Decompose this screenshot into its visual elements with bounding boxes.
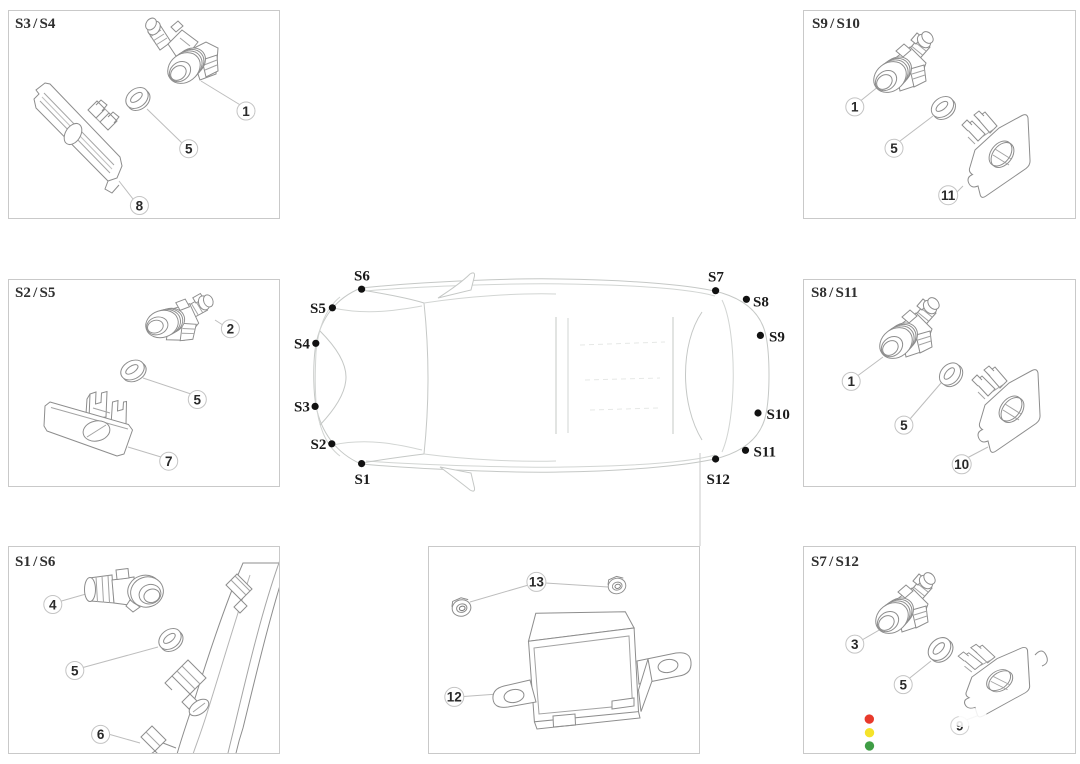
- svg-text:7: 7: [165, 454, 173, 469]
- svg-text:S8 / S11: S8 / S11: [811, 285, 858, 301]
- svg-text:6: 6: [97, 727, 105, 742]
- svg-text:S7: S7: [708, 270, 724, 286]
- svg-text:12: 12: [447, 690, 462, 705]
- svg-text:S6: S6: [354, 269, 370, 285]
- svg-text:10: 10: [954, 457, 969, 472]
- svg-text:S2 / S5: S2 / S5: [15, 285, 55, 301]
- svg-text:4: 4: [49, 597, 57, 612]
- svg-text:3: 3: [851, 637, 859, 652]
- svg-text:S3: S3: [294, 400, 310, 416]
- svg-text:2: 2: [227, 322, 235, 337]
- svg-text:13: 13: [529, 575, 545, 590]
- svg-text:S5: S5: [310, 301, 326, 317]
- svg-text:S12: S12: [707, 472, 730, 488]
- svg-text:5: 5: [194, 392, 202, 407]
- svg-text:S1: S1: [355, 472, 371, 488]
- svg-text:5: 5: [71, 663, 79, 678]
- svg-text:S9: S9: [769, 330, 785, 346]
- svg-text:8: 8: [136, 198, 144, 213]
- svg-text:S9 / S10: S9 / S10: [812, 16, 860, 32]
- svg-text:S1 / S6: S1 / S6: [15, 554, 56, 570]
- svg-text:S8: S8: [753, 295, 769, 311]
- svg-text:5: 5: [900, 418, 908, 433]
- svg-text:1: 1: [851, 100, 859, 115]
- svg-text:1: 1: [847, 374, 855, 389]
- svg-text:S2: S2: [311, 437, 327, 453]
- svg-text:S11: S11: [754, 445, 777, 461]
- svg-text:5: 5: [890, 141, 898, 156]
- svg-text:5: 5: [185, 142, 193, 157]
- svg-text:S3 / S4: S3 / S4: [15, 16, 56, 32]
- svg-text:5: 5: [899, 677, 907, 692]
- svg-text:S7 / S12: S7 / S12: [811, 554, 859, 570]
- svg-text:1: 1: [242, 104, 250, 119]
- svg-text:11: 11: [941, 188, 956, 203]
- svg-text:S4: S4: [294, 337, 310, 353]
- svg-text:S10: S10: [767, 407, 790, 423]
